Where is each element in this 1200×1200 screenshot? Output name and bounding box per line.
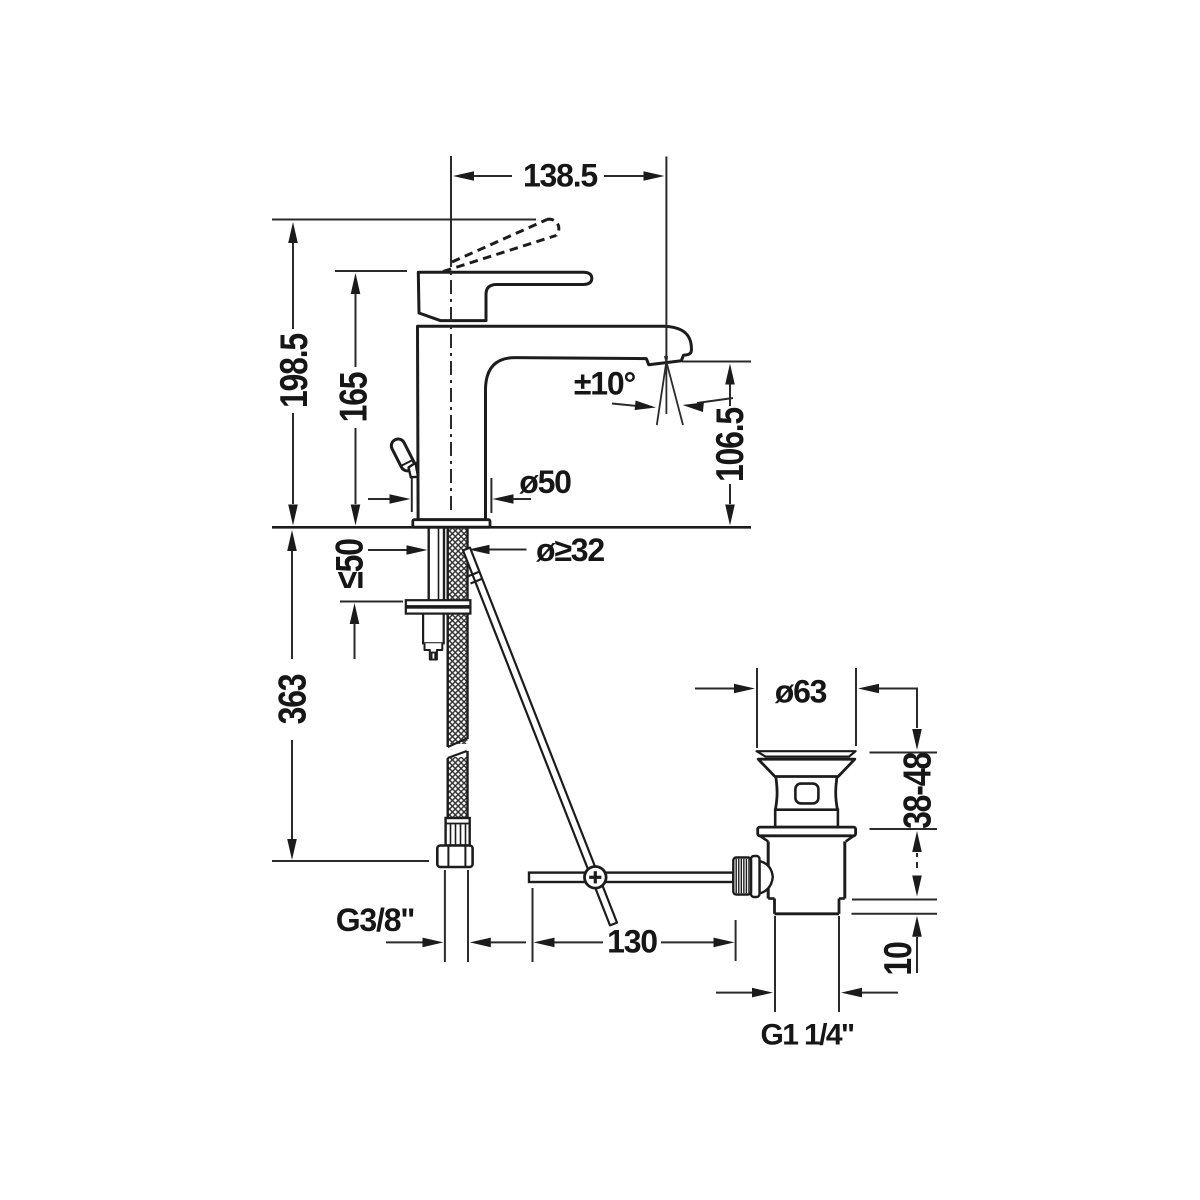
svg-text:138.5: 138.5 xyxy=(523,158,597,194)
svg-text:165: 165 xyxy=(332,372,376,422)
svg-text:ø63: ø63 xyxy=(775,674,827,710)
svg-text:198.5: 198.5 xyxy=(272,334,316,409)
svg-text:±10°: ±10° xyxy=(574,366,636,402)
svg-text:130: 130 xyxy=(607,924,657,960)
svg-text:G1 1/4": G1 1/4" xyxy=(760,1019,853,1052)
svg-text:≤50: ≤50 xyxy=(328,539,372,589)
svg-text:38-48: 38-48 xyxy=(896,753,940,829)
svg-text:10: 10 xyxy=(876,942,920,976)
svg-text:106.5: 106.5 xyxy=(708,408,752,483)
svg-text:ø50: ø50 xyxy=(519,464,571,500)
svg-text:G3/8": G3/8" xyxy=(336,902,415,938)
svg-text:ø≥32: ø≥32 xyxy=(536,532,604,568)
svg-text:363: 363 xyxy=(271,674,315,724)
